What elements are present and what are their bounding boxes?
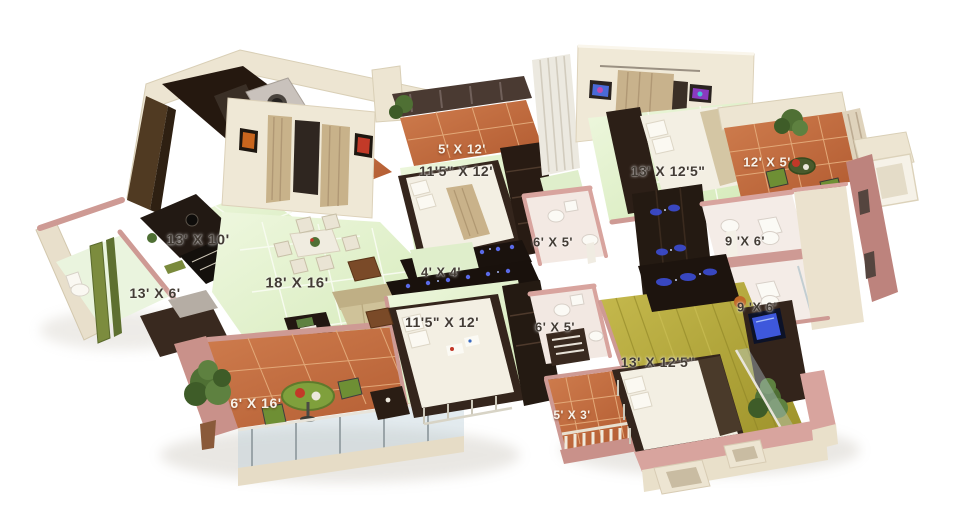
- bathroom-top-middle: [524, 188, 606, 264]
- floor-plan-image: 13' X 10' 13' X 6' 18' X 16' 6' X 16' 5'…: [0, 0, 957, 531]
- floor-plan-render: [0, 0, 957, 531]
